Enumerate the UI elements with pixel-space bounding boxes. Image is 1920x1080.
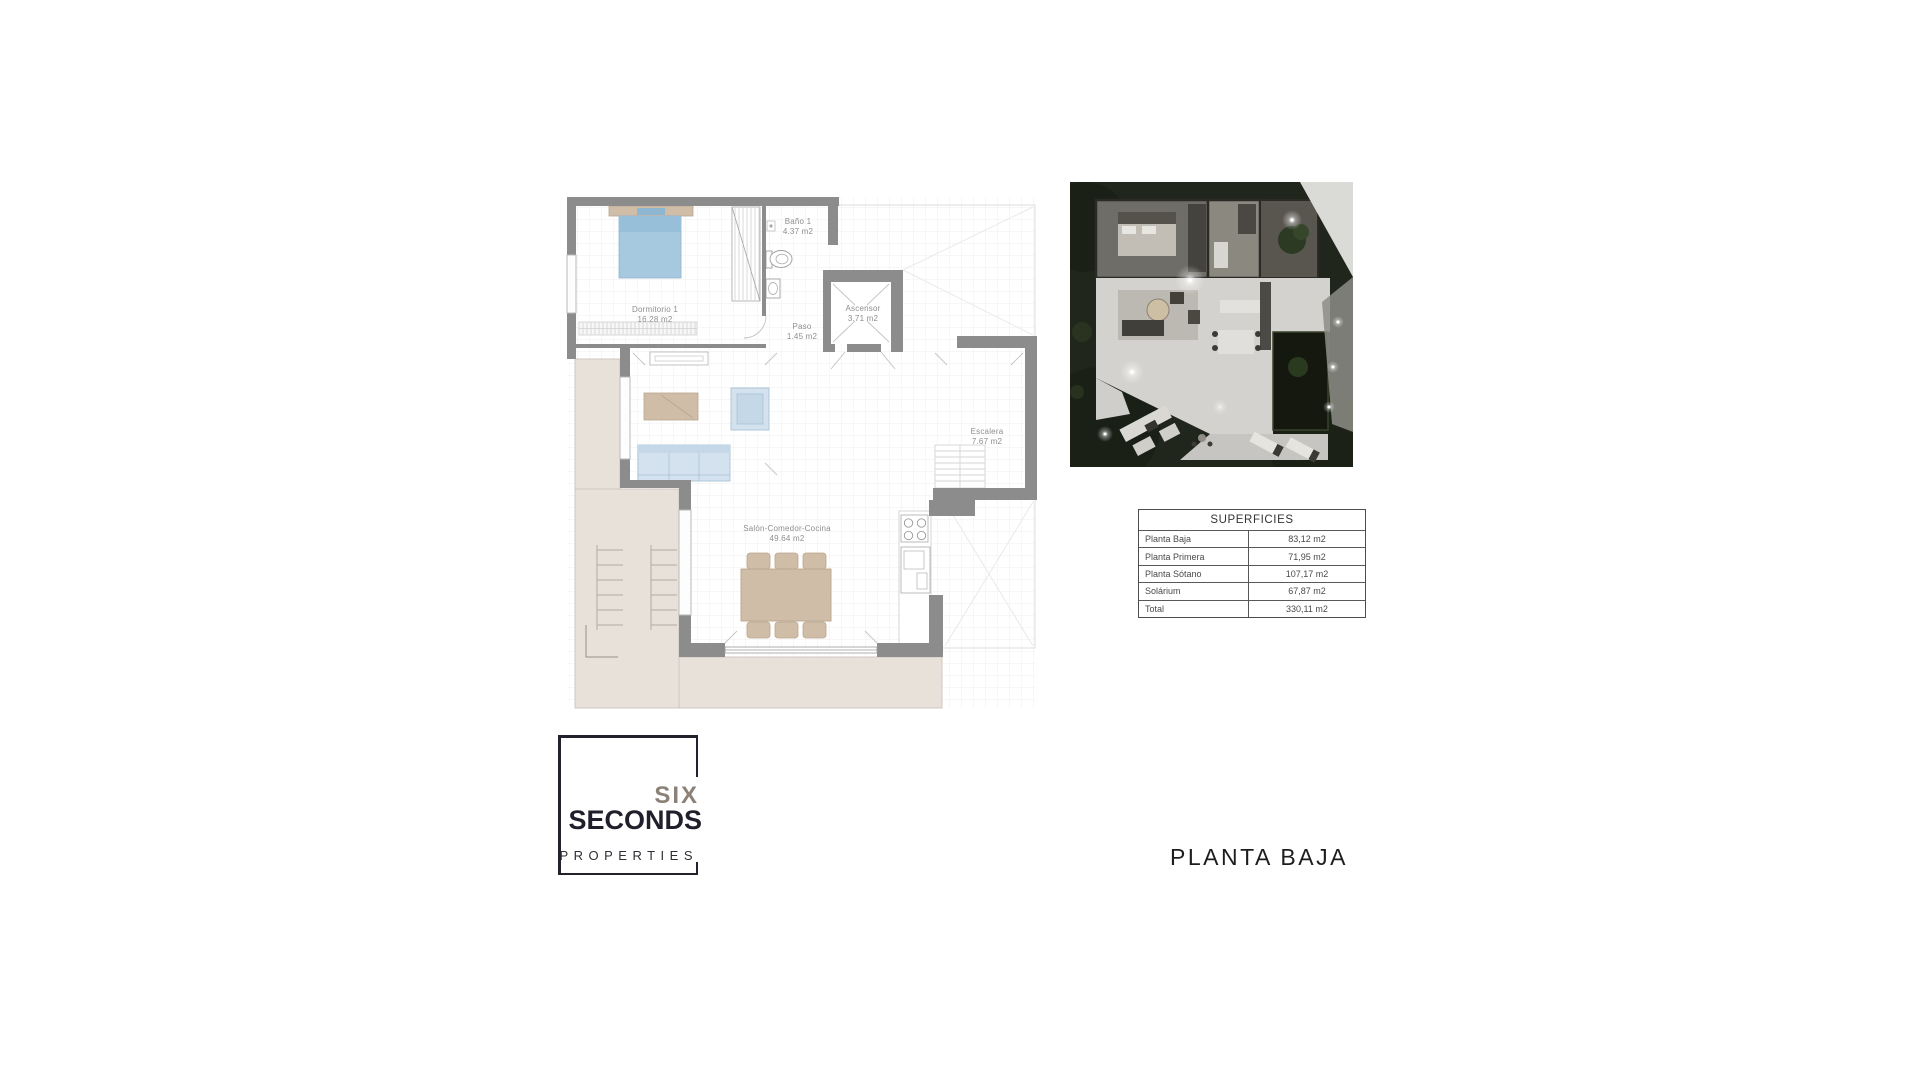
logo-frame-right-bottom	[696, 862, 699, 875]
dining-chair	[803, 553, 826, 569]
row-value: 83,12 m2	[1249, 531, 1365, 547]
bed	[609, 206, 693, 278]
surfaces-table-title: SUPERFICIES	[1139, 510, 1365, 531]
sink	[766, 279, 780, 298]
row-value: 67,87 m2	[1249, 583, 1365, 599]
stairs	[935, 445, 985, 488]
row-label: Solárium	[1139, 583, 1249, 599]
table-row: Planta Primera 71,95 m2	[1139, 548, 1365, 565]
toilet	[766, 251, 792, 269]
table-row: Planta Baja 83,12 m2	[1139, 531, 1365, 548]
sheet-title: PLANTA BAJA	[1139, 844, 1379, 871]
floor-plan: Dormitorio 116.28 m2 Baño 14.37 m2 Ascen…	[565, 195, 1037, 710]
room-label-dormitorio: Dormitorio 116.28 m2	[585, 305, 725, 324]
dining-chair	[747, 622, 770, 638]
dining-chair	[803, 622, 826, 638]
fridge	[901, 547, 930, 593]
sideboard	[650, 352, 708, 365]
armchair	[731, 388, 769, 430]
room-label-salon: Salón-Comedor-Cocina49.64 m2	[717, 524, 857, 543]
room-label-bano: Baño 14.37 m2	[728, 217, 868, 236]
logo-frame-right-top	[696, 735, 699, 777]
six-seconds-logo: SIX SECONDS PROPERTIES	[558, 735, 698, 875]
room-label-ascensor: Ascensor3.71 m2	[793, 304, 933, 323]
logo-frame-bottom	[558, 873, 698, 876]
row-label: Total	[1139, 601, 1249, 617]
row-label: Planta Sótano	[1139, 566, 1249, 582]
logo-frame-top	[558, 735, 698, 738]
row-label: Planta Baja	[1139, 531, 1249, 547]
plan-sheet: Dormitorio 116.28 m2 Baño 14.37 m2 Ascen…	[0, 0, 1920, 1080]
row-value: 330,11 m2	[1249, 601, 1365, 617]
table-row: Total 330,11 m2	[1139, 601, 1365, 617]
sliding-door	[725, 647, 877, 653]
dining-table	[741, 569, 831, 621]
dining-set	[741, 553, 831, 638]
dining-chair	[775, 622, 798, 638]
kitchen	[899, 511, 931, 651]
row-label: Planta Primera	[1139, 548, 1249, 564]
room-label-escalera: Escalera7.67 m2	[917, 427, 1057, 446]
dining-chair	[775, 553, 798, 569]
room-label-paso: Paso1.45 m2	[732, 322, 872, 341]
aerial-render-image	[1070, 182, 1353, 467]
coffee-table	[644, 393, 698, 420]
surfaces-table: SUPERFICIES Planta Baja 83,12 m2 Planta …	[1138, 509, 1366, 618]
floor-plan-drawing	[565, 195, 1037, 710]
render-pool	[1273, 332, 1328, 430]
table-row: Planta Sótano 107,17 m2	[1139, 566, 1365, 583]
logo-word-seconds: SECONDS	[568, 807, 702, 834]
logo-word-properties: PROPERTIES	[559, 849, 698, 862]
row-value: 107,17 m2	[1249, 566, 1365, 582]
row-value: 71,95 m2	[1249, 548, 1365, 564]
dining-chair	[747, 553, 770, 569]
table-row: Solárium 67,87 m2	[1139, 583, 1365, 600]
sofa	[638, 445, 730, 481]
